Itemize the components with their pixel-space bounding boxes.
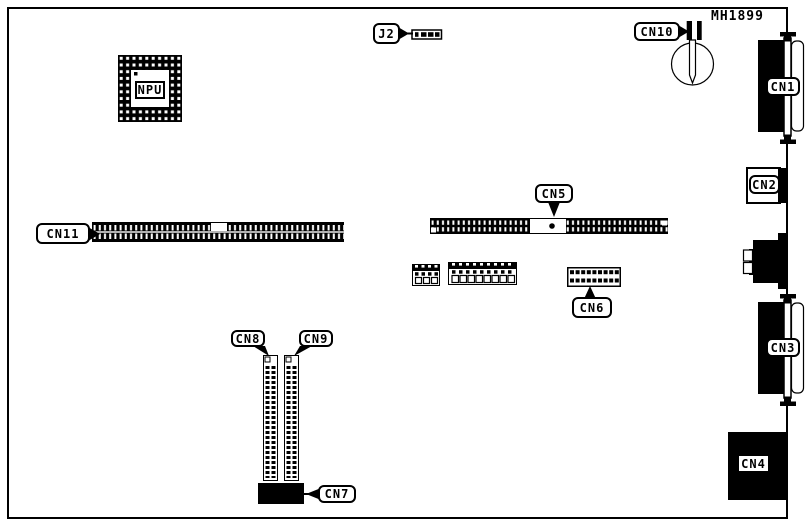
cn2-label: CN2	[749, 175, 780, 194]
cn7-connector	[258, 483, 304, 504]
din-connector	[742, 230, 788, 292]
cn8-label: CN8	[231, 330, 265, 347]
cn5-label: CN5	[535, 184, 573, 203]
cn11-label: CN11	[36, 223, 90, 244]
header-a	[412, 264, 440, 286]
cn11-connector	[92, 222, 344, 242]
header-b	[448, 262, 517, 285]
cn4-label: CN4	[738, 455, 769, 472]
cn5-connector	[430, 218, 668, 234]
j2-label: J2	[373, 23, 400, 44]
cn9-label: CN9	[299, 330, 333, 347]
cn6-label: CN6	[572, 297, 612, 318]
cn10-label: CN10	[634, 22, 680, 41]
cn7-label: CN7	[318, 485, 356, 503]
part-number: MH1899	[711, 9, 764, 24]
cn1-label: CN1	[766, 77, 800, 96]
board-diagram: NPU J2 CN10 MH1899 CN1 CN2	[0, 0, 809, 527]
cn9-socket	[284, 355, 299, 481]
npu-label: NPU	[135, 81, 165, 99]
cn6-connector	[567, 267, 621, 287]
j2-jumper	[411, 28, 443, 41]
cn8-socket	[263, 355, 278, 481]
cn3-label: CN3	[766, 338, 800, 357]
